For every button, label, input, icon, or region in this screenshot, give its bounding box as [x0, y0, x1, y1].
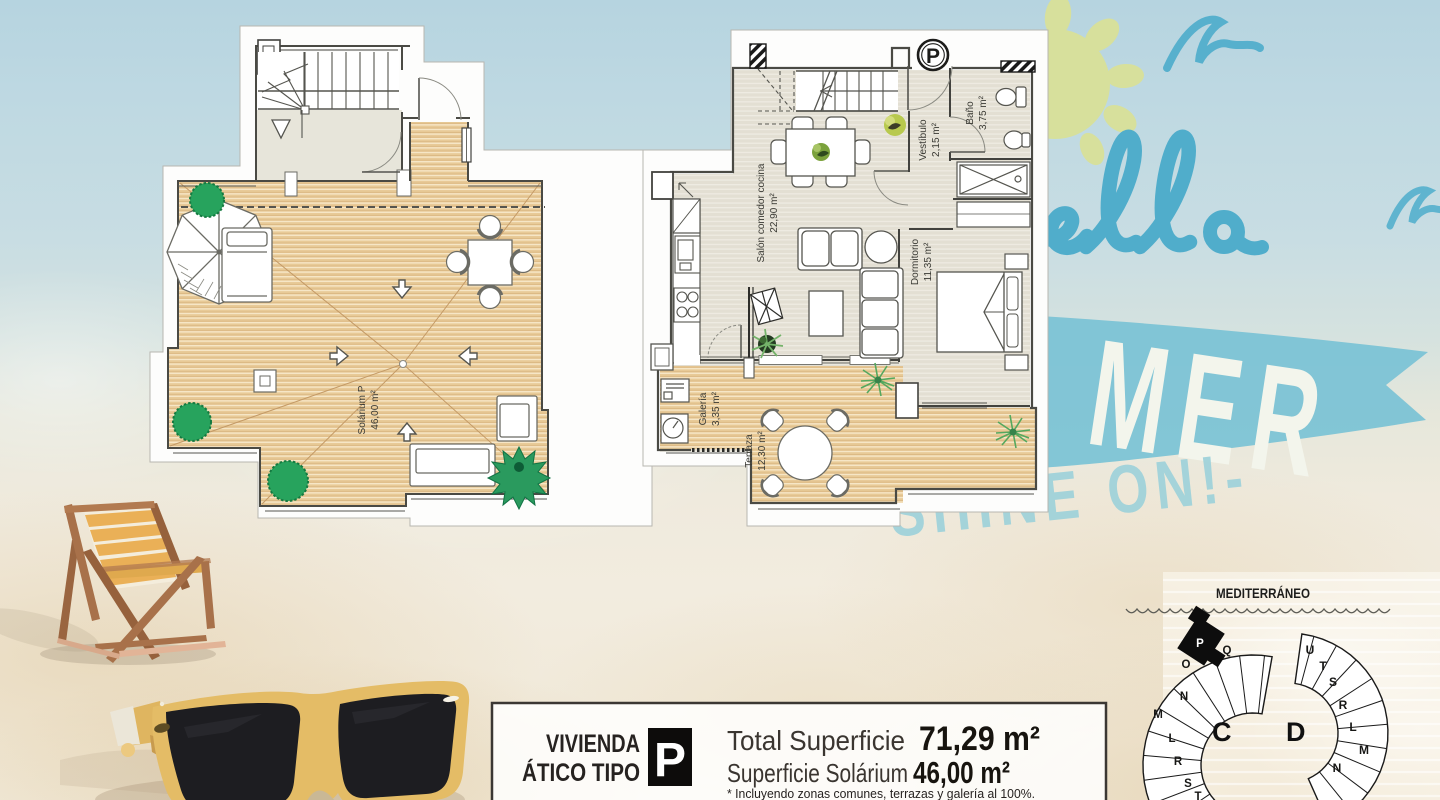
svg-text:S: S: [1184, 778, 1192, 790]
svg-text:Solárium P: Solárium P: [357, 385, 368, 434]
svg-text:P: P: [654, 734, 686, 787]
svg-text:T: T: [1194, 791, 1201, 800]
svg-text:Superficie Solárium: Superficie Solárium: [727, 758, 908, 788]
svg-text:Baño: Baño: [965, 101, 976, 125]
svg-text:VIVIENDA: VIVIENDA: [546, 730, 640, 758]
svg-text:M: M: [1153, 709, 1163, 721]
svg-text:3,75 m²: 3,75 m²: [978, 95, 989, 130]
svg-text:12,30 m²: 12,30 m²: [757, 431, 768, 471]
svg-text:R: R: [1339, 698, 1348, 712]
svg-text:R: R: [1174, 756, 1183, 768]
svg-text:11,35 m²: 11,35 m²: [923, 242, 934, 281]
svg-text:O: O: [1182, 659, 1191, 671]
svg-text:P: P: [1196, 638, 1204, 650]
svg-text:T: T: [1319, 659, 1327, 673]
svg-text:Total Superficie: Total Superficie: [727, 725, 905, 756]
svg-text:46,00 m²: 46,00 m²: [913, 755, 1010, 790]
svg-text:MEDITERRÁNEO: MEDITERRÁNEO: [1216, 585, 1310, 601]
svg-text:Q: Q: [1223, 645, 1232, 657]
svg-text:N: N: [1333, 761, 1342, 775]
svg-text:Salón comedor cocina: Salón comedor cocina: [756, 163, 767, 262]
svg-text:L: L: [1349, 720, 1356, 734]
svg-text:Vestíbulo: Vestíbulo: [918, 119, 929, 161]
svg-text:71,29 m²: 71,29 m²: [919, 720, 1040, 758]
svg-text:22,90 m²: 22,90 m²: [769, 193, 780, 233]
svg-text:2,15 m²: 2,15 m²: [931, 122, 942, 157]
svg-text:* Incluyendo zonas comunes, te: * Incluyendo zonas comunes, terrazas y g…: [727, 786, 1035, 800]
svg-text:L: L: [1168, 733, 1175, 745]
svg-text:M: M: [1359, 743, 1369, 757]
svg-text:D: D: [1286, 717, 1306, 747]
svg-text:Galería: Galería: [698, 392, 709, 425]
svg-text:Dormitorio: Dormitorio: [910, 239, 921, 286]
svg-text:P: P: [926, 45, 940, 68]
svg-text:3,35 m²: 3,35 m²: [711, 391, 722, 426]
svg-text:46,00 m²: 46,00 m²: [370, 390, 381, 430]
svg-text:N: N: [1180, 691, 1188, 703]
svg-text:S: S: [1329, 675, 1337, 689]
svg-text:ÁTICO TIPO: ÁTICO TIPO: [522, 758, 640, 787]
svg-text:C: C: [1212, 717, 1232, 747]
svg-text:Terraza: Terraza: [744, 434, 755, 468]
svg-text:U: U: [1306, 643, 1315, 657]
